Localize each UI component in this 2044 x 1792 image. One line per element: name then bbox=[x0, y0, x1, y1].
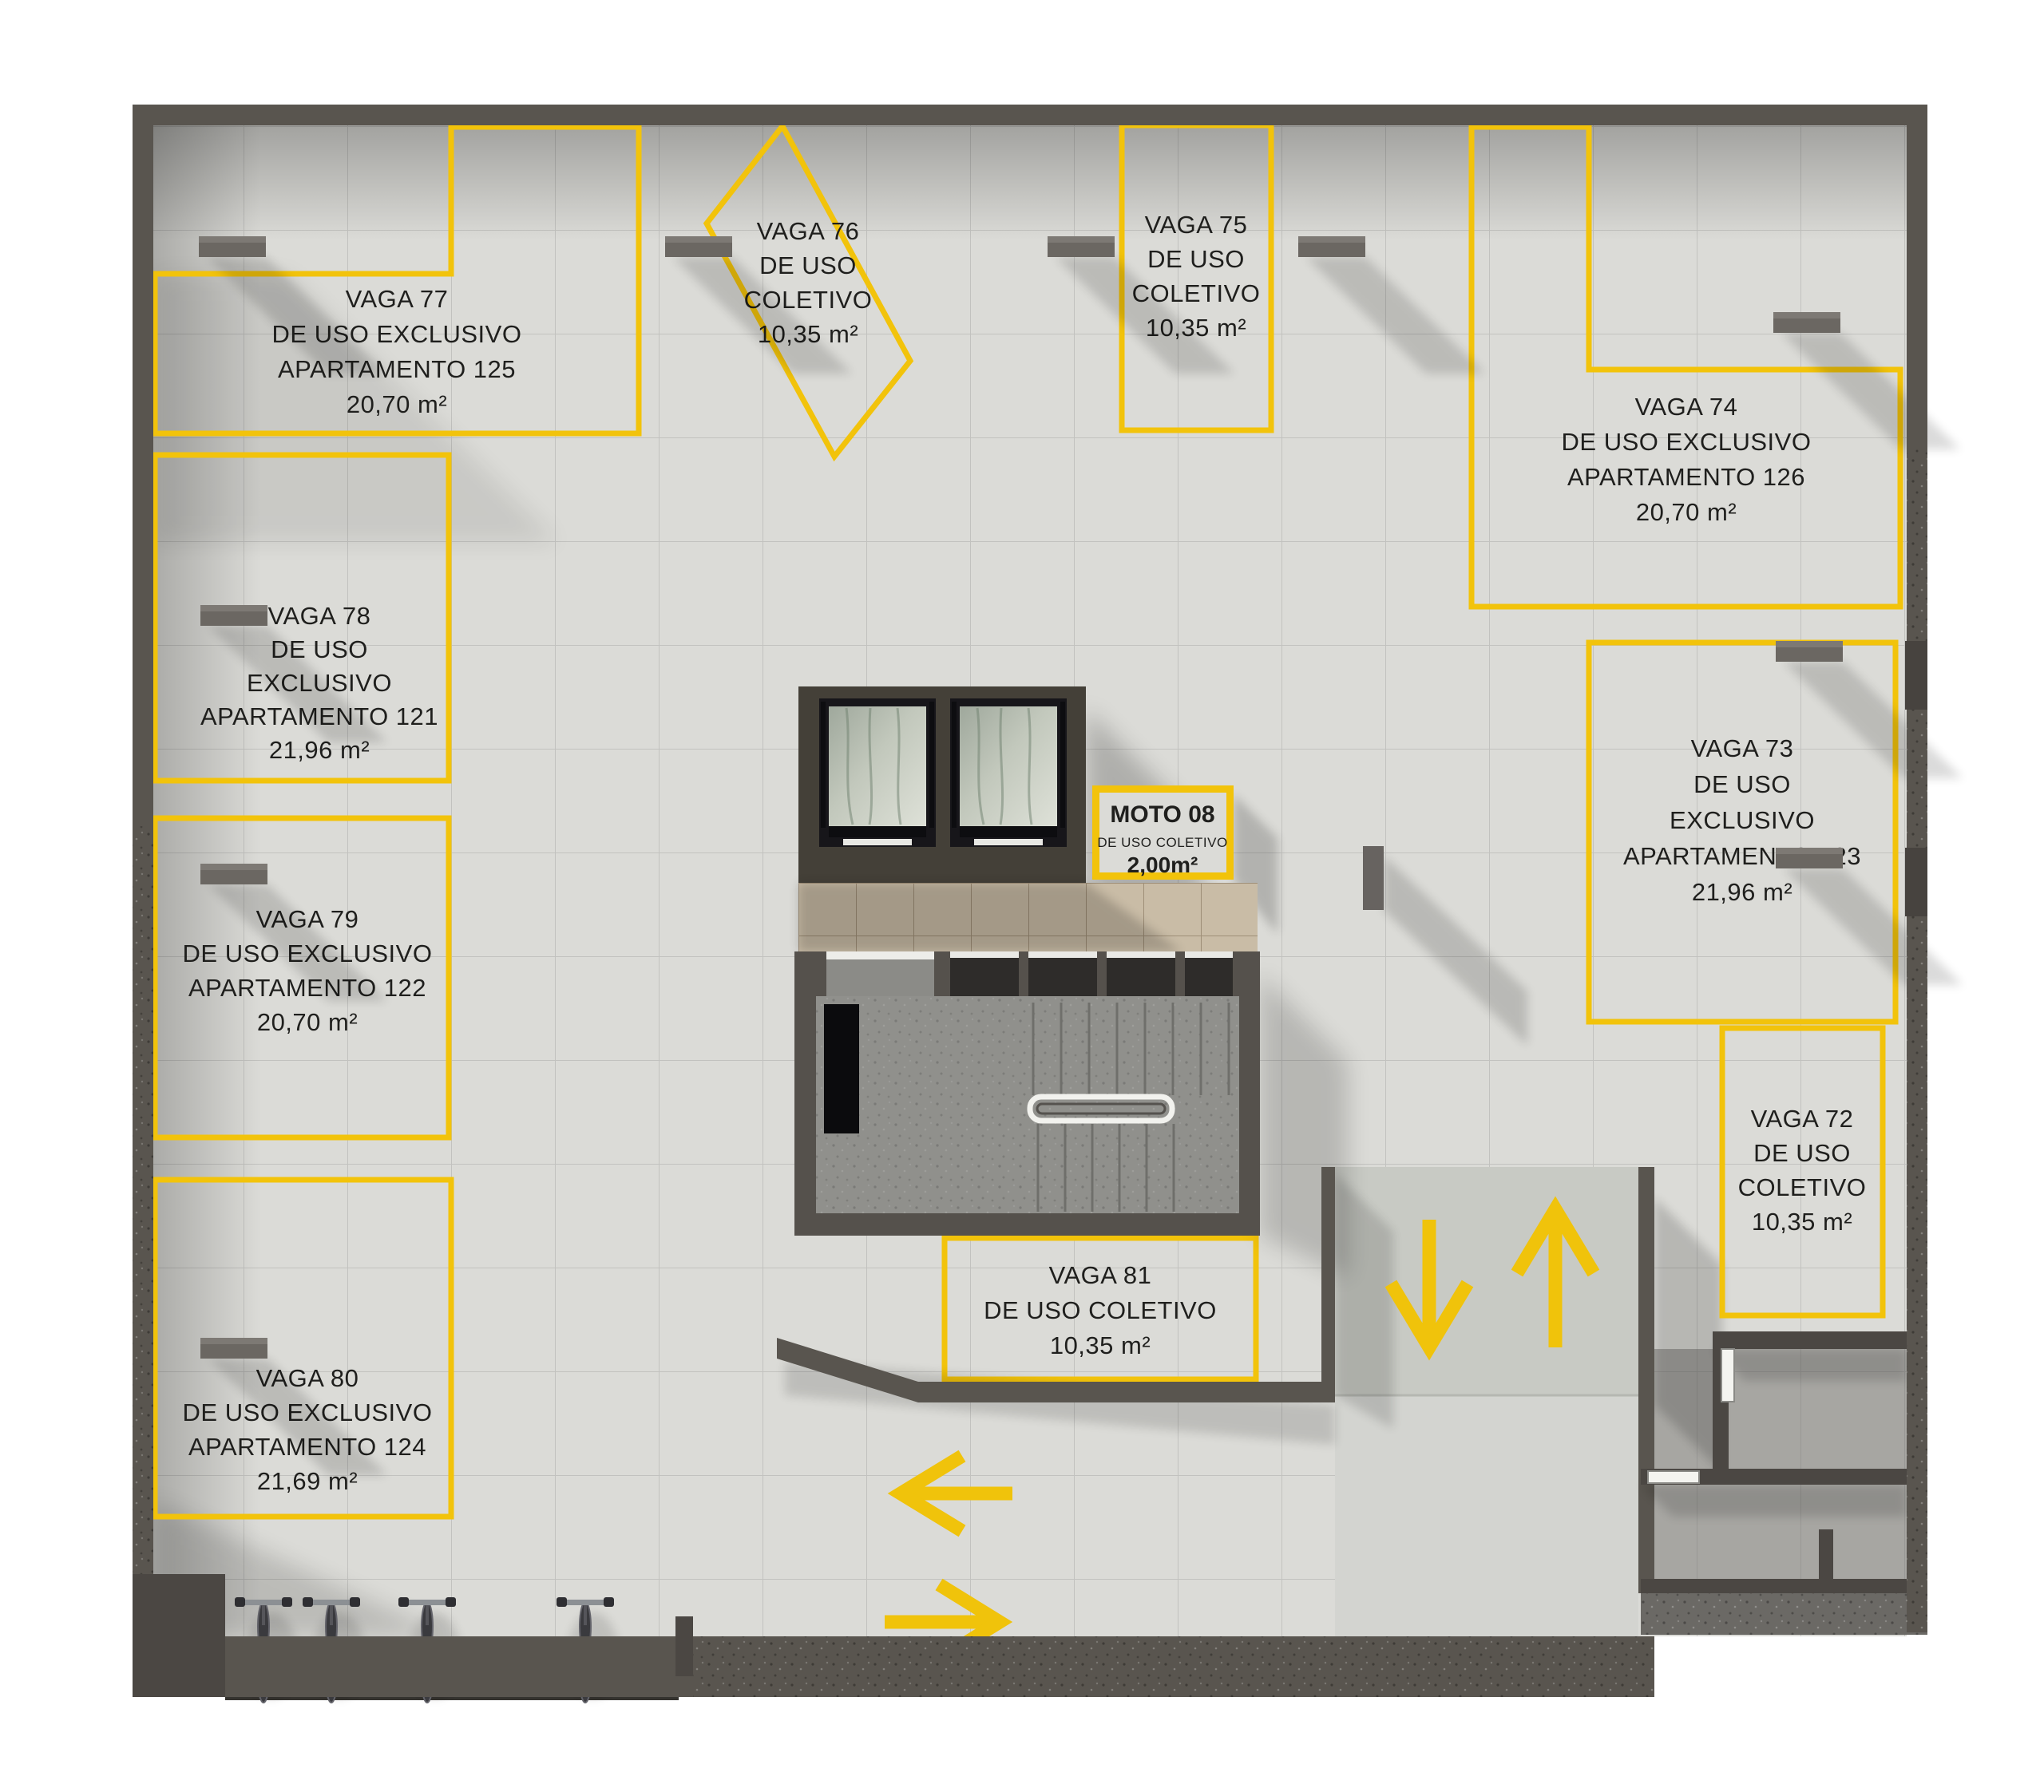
wall-bottom-concrete bbox=[693, 1636, 1654, 1697]
stair-entrance-threshold bbox=[826, 951, 934, 959]
vaga-81-line-2: DE USO COLETIVO bbox=[984, 1296, 1217, 1324]
door-leaf-1 bbox=[1721, 1349, 1734, 1402]
niche-1 bbox=[950, 958, 1019, 996]
wall-left-concrete bbox=[133, 826, 153, 1579]
top-wall-shadow bbox=[153, 125, 1907, 241]
vaga-74-line-4: 20,70 m² bbox=[1636, 498, 1737, 526]
vaga-72-line-4: 10,35 m² bbox=[1752, 1208, 1852, 1236]
vaga-76-line-1: VAGA 76 bbox=[757, 217, 860, 245]
vaga-75-line-1: VAGA 75 bbox=[1145, 211, 1248, 239]
niche-2 bbox=[1028, 958, 1097, 996]
elevator-2 bbox=[950, 698, 1067, 847]
room-wall-shadow-2 bbox=[1641, 1485, 1907, 1517]
bottom-right-concrete-speckle bbox=[1641, 1593, 1927, 1635]
vaga-77-line-1: VAGA 77 bbox=[346, 285, 449, 313]
wall-top bbox=[133, 105, 1927, 125]
stair-niches bbox=[950, 955, 1233, 996]
room-wall-stub bbox=[1819, 1529, 1833, 1579]
niche-3 bbox=[1107, 958, 1175, 996]
vaga-81-line-1: VAGA 81 bbox=[1049, 1261, 1152, 1289]
vaga-73-line-3: EXCLUSIVO bbox=[1670, 806, 1815, 834]
stair-block bbox=[794, 951, 1260, 1236]
vaga-76-line-2: DE USO bbox=[759, 251, 857, 279]
vaga-75-line-2: DE USO bbox=[1147, 245, 1245, 273]
vaga-81-line-3: 10,35 m² bbox=[1050, 1331, 1151, 1359]
wall-pilaster-1 bbox=[1905, 641, 1927, 710]
bike-bay-corner-block bbox=[133, 1574, 225, 1697]
vaga-73-line-1: VAGA 73 bbox=[1691, 734, 1794, 762]
vaga-77-line-4: 20,70 m² bbox=[347, 390, 447, 418]
stair-entrance-gap bbox=[826, 959, 934, 996]
vaga-79-line-4: 20,70 m² bbox=[257, 1008, 358, 1036]
room-wall-a bbox=[1713, 1331, 1907, 1349]
room-wall-shadow-1 bbox=[1713, 1349, 1907, 1381]
ramp-surface-lower bbox=[1335, 1395, 1638, 1636]
aisle-wall bbox=[918, 1382, 1335, 1402]
room-wall-bottom bbox=[1641, 1579, 1907, 1593]
vaga-73-line-5: 21,96 m² bbox=[1692, 878, 1792, 906]
vaga-72-line-2: DE USO bbox=[1753, 1139, 1851, 1167]
niche-4 bbox=[1185, 958, 1233, 996]
floor-plan-drawing: VAGA 77 DE USO EXCLUSIVO APARTAMENTO 125… bbox=[0, 0, 2044, 1792]
vaga-74-line-3: APARTAMENTO 126 bbox=[1567, 463, 1805, 491]
ramp-wall-right bbox=[1638, 1167, 1654, 1593]
moto-sign-line-1: MOTO 08 bbox=[1110, 801, 1214, 828]
vaga-78-line-1: VAGA 78 bbox=[268, 602, 371, 630]
vaga-73-line-2: DE USO bbox=[1693, 770, 1791, 798]
floor-plan-page: VAGA 77 DE USO EXCLUSIVO APARTAMENTO 125… bbox=[0, 0, 2044, 1792]
vaga-74-line-2: DE USO EXCLUSIVO bbox=[1562, 428, 1812, 456]
wall-pilaster-2 bbox=[1905, 848, 1927, 916]
elevator-1 bbox=[819, 698, 936, 847]
stair-shaft bbox=[824, 1004, 859, 1133]
ramp-wall-left bbox=[1321, 1167, 1335, 1395]
vaga-72-line-3: COLETIVO bbox=[1738, 1173, 1867, 1201]
moto-sign: MOTO 08 DE USO COLETIVO 2,00m² bbox=[1092, 785, 1234, 880]
moto-sign-line-2: DE USO COLETIVO bbox=[1097, 835, 1227, 850]
wall-right-concrete bbox=[1907, 447, 1927, 1632]
vaga-72-line-1: VAGA 72 bbox=[1751, 1105, 1854, 1133]
door-leaf-2 bbox=[1648, 1471, 1699, 1483]
vaga-74-line-1: VAGA 74 bbox=[1635, 393, 1738, 421]
moto-sign-line-3: 2,00m² bbox=[1127, 852, 1198, 877]
